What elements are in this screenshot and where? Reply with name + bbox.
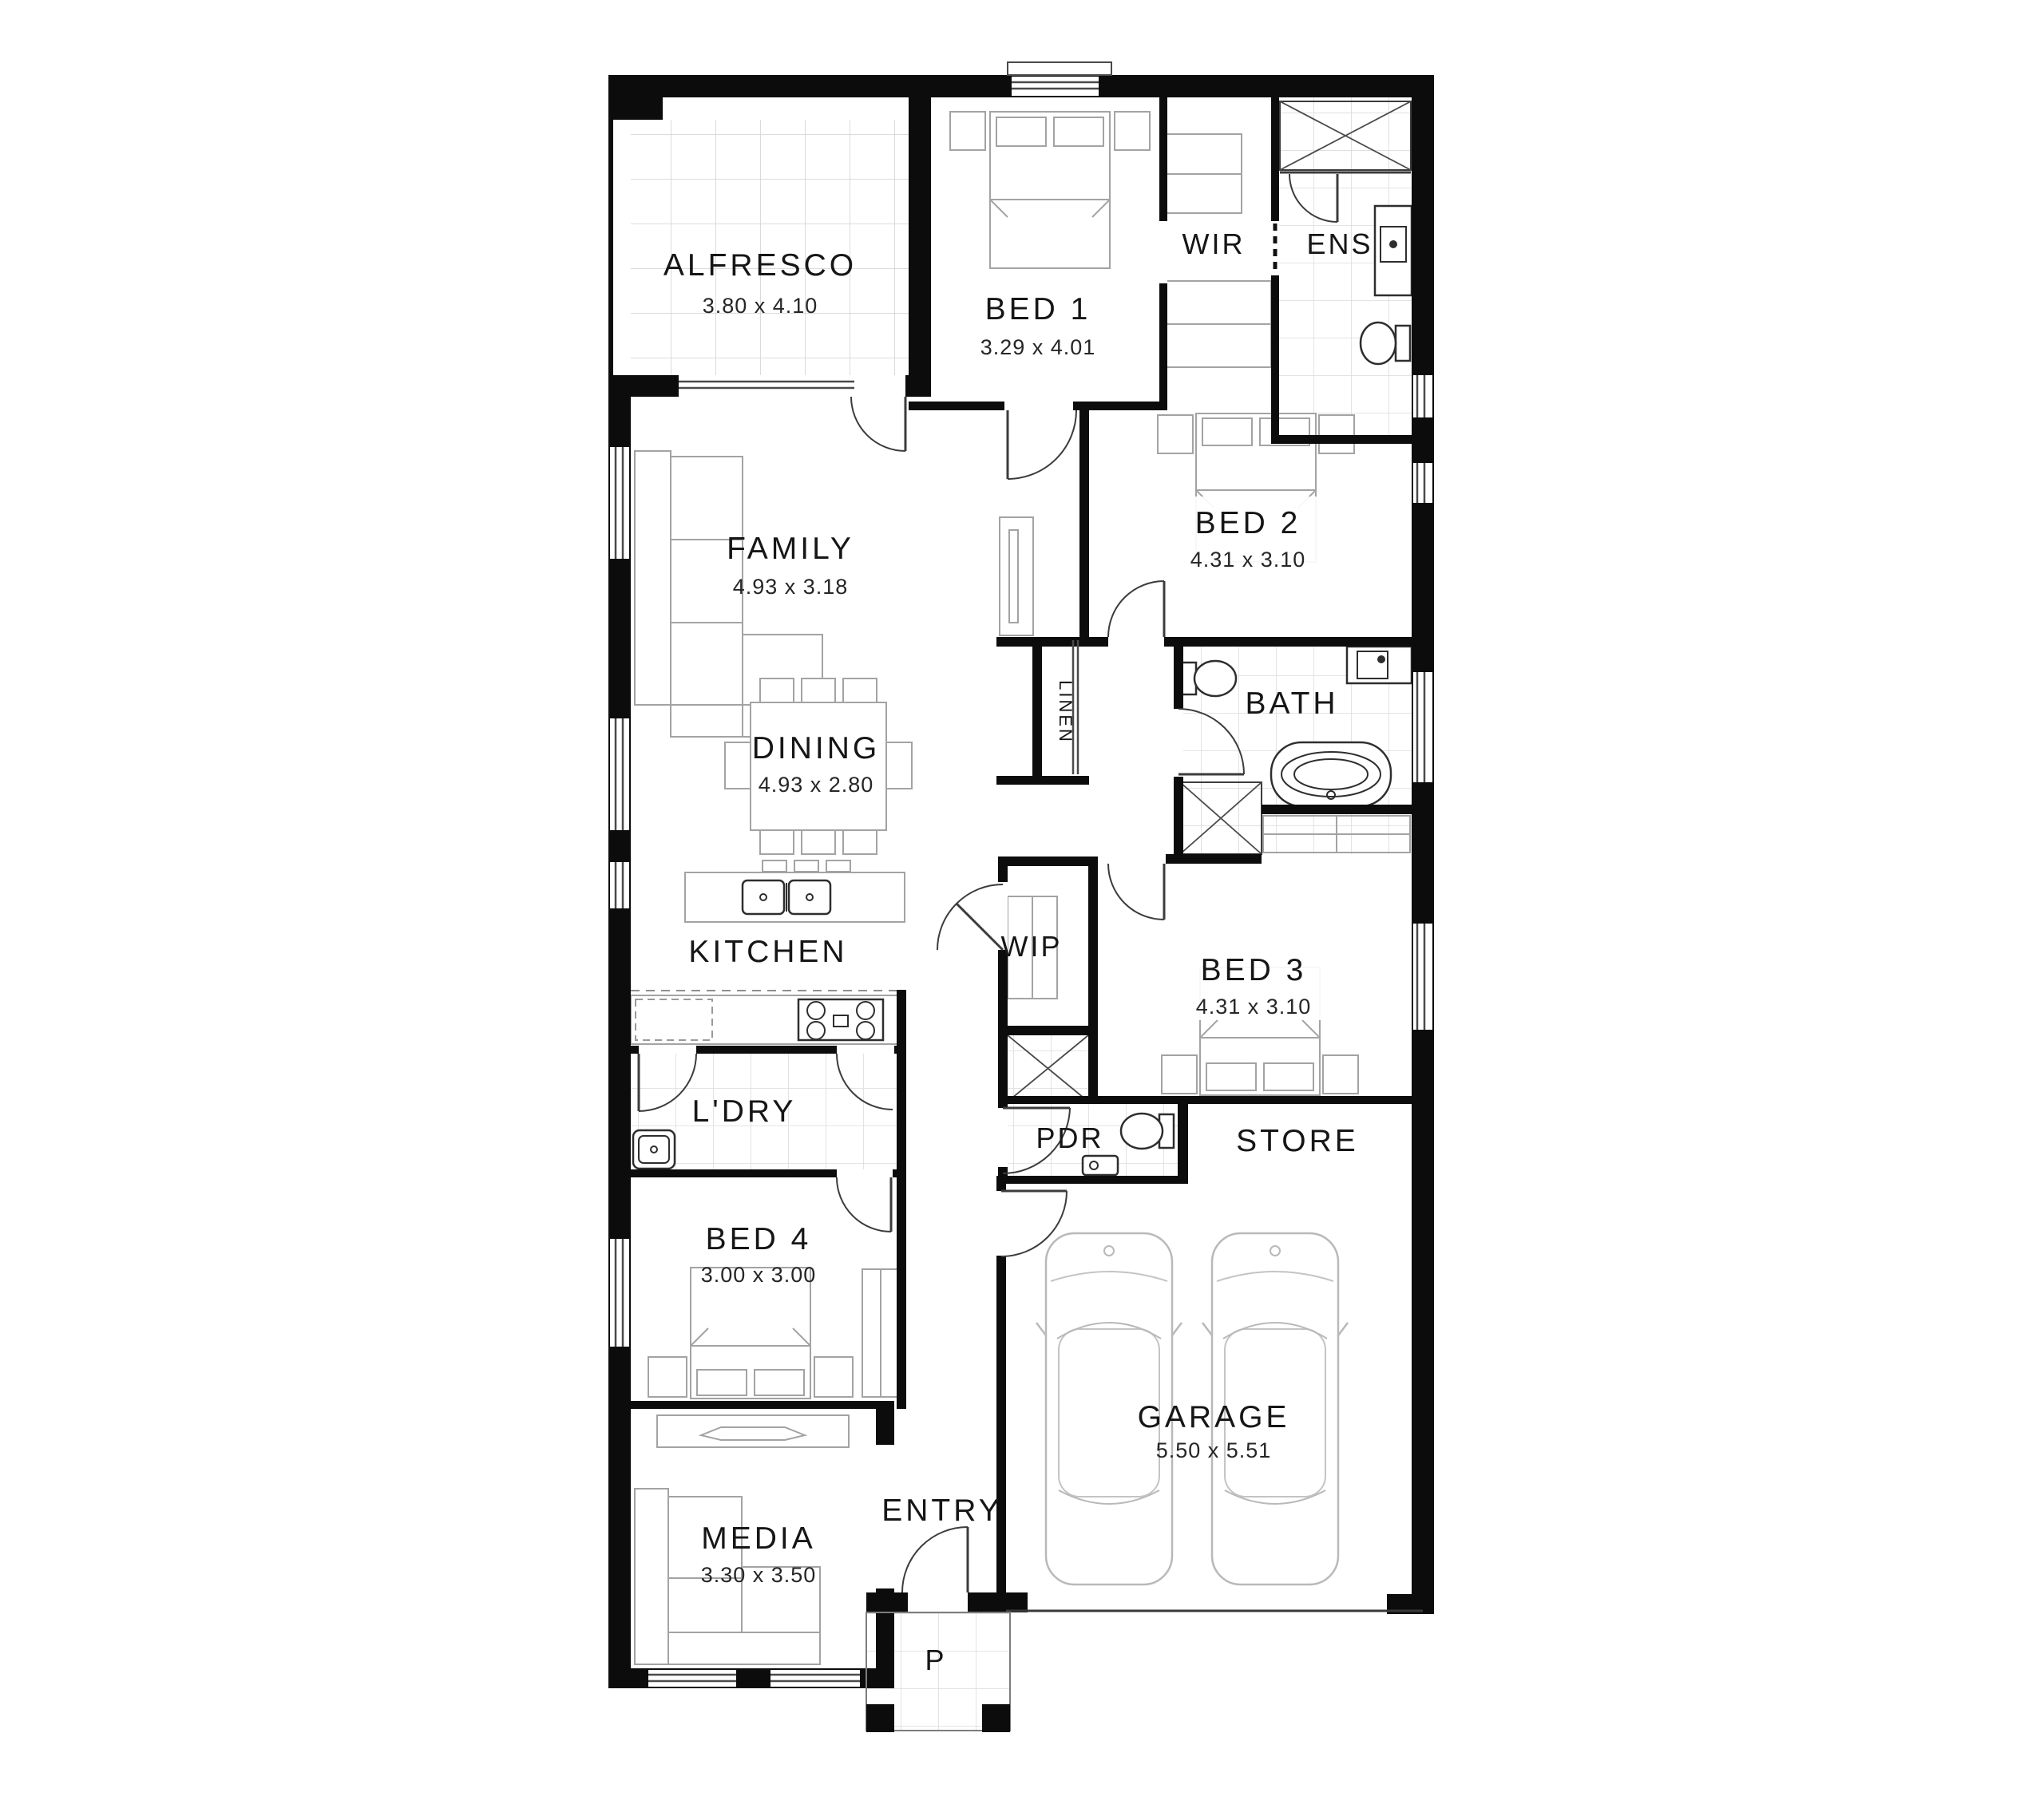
kitchen-island (685, 860, 905, 922)
svg-text:BED 4: BED 4 (706, 1222, 812, 1256)
label-bed1: BED 1 3.29 x 4.01 (980, 292, 1096, 359)
laundry-tub (633, 1130, 675, 1169)
svg-text:4.93 x 3.18: 4.93 x 3.18 (733, 575, 849, 599)
label-linen: LINEN (1056, 680, 1075, 744)
label-ldry: L'DRY (692, 1094, 797, 1129)
label-wip: WIP (1001, 930, 1063, 963)
svg-text:4.93 x 2.80: 4.93 x 2.80 (759, 773, 874, 797)
label-kitchen: KITCHEN (688, 935, 847, 969)
ens-toilet (1361, 322, 1410, 364)
svg-text:KITCHEN: KITCHEN (688, 935, 847, 969)
bath-tub (1271, 742, 1391, 806)
label-wir: WIR (1182, 227, 1246, 260)
svg-text:BED 1: BED 1 (985, 292, 1091, 326)
alfresco-floor-tiles (613, 120, 909, 375)
svg-text:WIP: WIP (1001, 930, 1063, 963)
svg-text:ENTRY: ENTRY (881, 1493, 1002, 1528)
label-bed3: BED 3 4.31 x 3.10 (1167, 944, 1340, 1020)
bed1-bed (950, 112, 1150, 268)
bed4-bed (648, 1268, 853, 1399)
svg-text:3.29 x 4.01: 3.29 x 4.01 (980, 335, 1096, 359)
label-entry: ENTRY (881, 1493, 1002, 1528)
svg-text:BED 3: BED 3 (1201, 953, 1307, 987)
label-bath: BATH (1245, 686, 1338, 721)
floor-plan-page: ALFRESCO 3.80 x 4.10 BED 1 3.29 x 4.01 W… (0, 0, 2044, 1808)
svg-text:FAMILY: FAMILY (727, 532, 854, 566)
svg-text:3.00 x 3.00: 3.00 x 3.00 (701, 1263, 817, 1287)
svg-text:WIR: WIR (1182, 227, 1246, 260)
svg-text:4.31 x 3.10: 4.31 x 3.10 (1196, 995, 1312, 1019)
label-bed4: BED 4 3.00 x 3.00 (701, 1222, 817, 1287)
svg-text:STORE: STORE (1236, 1124, 1359, 1158)
ens-vanity (1375, 206, 1412, 295)
bed4-robe (862, 1269, 900, 1397)
svg-text:ENS: ENS (1306, 227, 1373, 260)
svg-text:3.80 x 4.10: 3.80 x 4.10 (703, 294, 818, 318)
bath-toilet (1182, 661, 1236, 696)
svg-text:4.31 x 3.10: 4.31 x 3.10 (1190, 548, 1306, 572)
svg-text:BED 2: BED 2 (1195, 506, 1301, 540)
svg-text:MEDIA: MEDIA (701, 1521, 816, 1556)
svg-text:BATH: BATH (1245, 686, 1338, 721)
label-pdr: PDR (1036, 1122, 1103, 1154)
label-garage: GARAGE 5.50 x 5.51 (1138, 1400, 1290, 1462)
label-ens: ENS (1306, 227, 1373, 260)
label-dining: DINING 4.93 x 2.80 (752, 731, 881, 797)
pdr-basin (1083, 1156, 1118, 1175)
svg-text:P: P (925, 1644, 946, 1676)
svg-text:L'DRY: L'DRY (692, 1094, 797, 1129)
label-store: STORE (1236, 1124, 1359, 1158)
svg-text:3.30 x 3.50: 3.30 x 3.50 (701, 1563, 817, 1587)
svg-text:LINEN: LINEN (1056, 680, 1075, 744)
family-tv-cabinet (1000, 517, 1033, 635)
media-tv-unit (657, 1415, 849, 1447)
kitchen-bench (631, 991, 905, 1044)
bath-vanity (1347, 647, 1412, 683)
label-porch: P (925, 1644, 946, 1676)
label-bed2: BED 2 4.31 x 3.10 (1167, 497, 1329, 572)
label-family: FAMILY 4.93 x 3.18 (727, 532, 854, 599)
pdr-toilet (1121, 1114, 1174, 1149)
floor-plan: ALFRESCO 3.80 x 4.10 BED 1 3.29 x 4.01 W… (0, 0, 2044, 1808)
bath-shower (1180, 782, 1262, 854)
dining-table (725, 678, 912, 854)
ens-shower (1280, 101, 1411, 172)
svg-text:GARAGE: GARAGE (1138, 1400, 1290, 1434)
svg-text:PDR: PDR (1036, 1122, 1103, 1154)
svg-text:ALFRESCO: ALFRESCO (664, 248, 857, 283)
svg-text:5.50 x 5.51: 5.50 x 5.51 (1156, 1438, 1272, 1462)
svg-text:DINING: DINING (752, 731, 881, 766)
label-media: MEDIA 3.30 x 3.50 (701, 1521, 817, 1587)
